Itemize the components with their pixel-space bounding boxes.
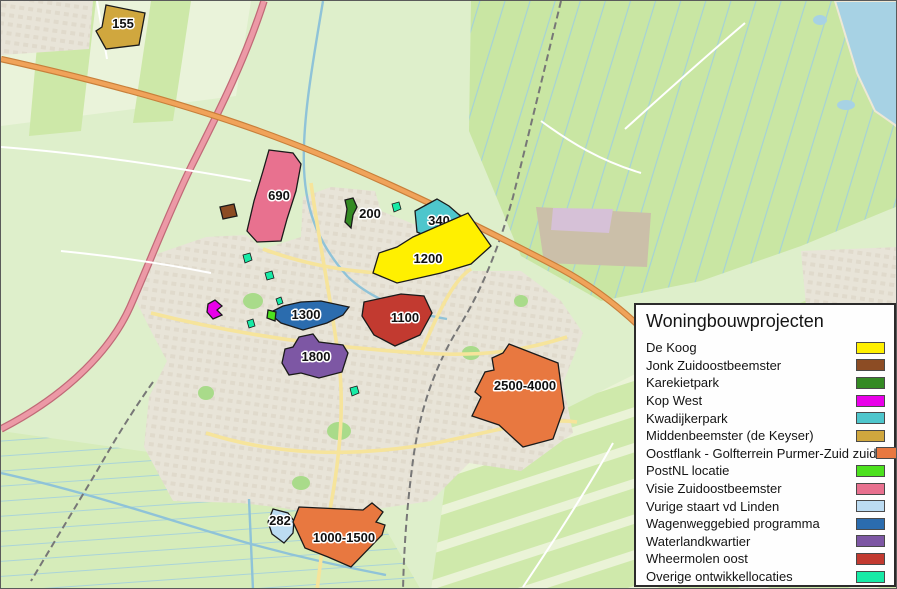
- legend-item: Kop West: [646, 392, 885, 410]
- legend-item: De Koog: [646, 339, 885, 357]
- legend-item-label: Waterlandkwartier: [646, 534, 750, 549]
- site-overige-ontwikkellocaties: [247, 319, 255, 328]
- legend-item: Vurige staart vd Linden: [646, 497, 885, 515]
- legend-item: Jonk Zuidoostbeemster: [646, 357, 885, 375]
- project-units-label: 1000-1500: [313, 530, 375, 545]
- legend-swatch: [856, 342, 885, 354]
- legend-item: PostNL locatie: [646, 462, 885, 480]
- legend-item-label: PostNL locatie: [646, 463, 729, 478]
- legend-item: Visie Zuidoostbeemster: [646, 480, 885, 498]
- legend-item: Middenbeemster (de Keyser): [646, 427, 885, 445]
- legend-swatch: [856, 483, 885, 495]
- legend-item-label: Wagenweggebied programma: [646, 516, 820, 531]
- legend-swatch: [856, 430, 885, 442]
- legend-item-label: Wheermolen oost: [646, 551, 748, 566]
- project-units-label: 1300: [292, 307, 321, 322]
- legend-swatch: [856, 500, 885, 512]
- legend-item-label: Visie Zuidoostbeemster: [646, 481, 782, 496]
- legend-item-label: Middenbeemster (de Keyser): [646, 428, 814, 443]
- legend-title: Woningbouwprojecten: [646, 311, 885, 332]
- legend-swatch: [876, 447, 897, 459]
- project-units-label: 690: [268, 188, 290, 203]
- legend-swatch: [856, 377, 885, 389]
- project-area-jonk-zuidoostbeemster: [220, 204, 237, 219]
- project-units-label: 155: [112, 16, 134, 31]
- project-units-label: 1800: [302, 349, 331, 364]
- legend-item-label: Vurige staart vd Linden: [646, 499, 779, 514]
- legend-item-label: Overige ontwikkellocaties: [646, 569, 793, 584]
- legend-item: Wheermolen oost: [646, 550, 885, 568]
- legend-item-label: Oostflank - Golfterrein Purmer-Zuid zuid: [646, 446, 876, 461]
- legend-item: Kwadijkerpark: [646, 409, 885, 427]
- project-units-label: 1100: [391, 310, 419, 325]
- legend-swatch: [856, 553, 885, 565]
- project-units-label: 1200: [414, 251, 443, 266]
- legend-item-label: Kop West: [646, 393, 702, 408]
- legend-swatch: [856, 359, 885, 371]
- legend-item-label: De Koog: [646, 340, 697, 355]
- legend-item: Wagenweggebied programma: [646, 515, 885, 533]
- legend-item: Waterlandkwartier: [646, 533, 885, 551]
- legend-item: Karekietpark: [646, 374, 885, 392]
- legend-swatch: [856, 465, 885, 477]
- legend-swatch: [856, 395, 885, 407]
- legend-swatch: [856, 518, 885, 530]
- project-units-label: 282: [269, 513, 291, 528]
- legend-item: Oostflank - Golfterrein Purmer-Zuid zuid: [646, 445, 885, 463]
- site-overige-ontwikkellocaties: [265, 271, 274, 280]
- project-units-label: 2500-4000: [494, 378, 556, 393]
- map-figure: 15569020034012001100130018002500-4000282…: [0, 0, 897, 589]
- legend-item-label: Karekietpark: [646, 375, 719, 390]
- map-urban-industrial: [536, 207, 651, 267]
- legend-swatch: [856, 535, 885, 547]
- map-urban-village-northwest: [1, 1, 93, 55]
- legend-items: De KoogJonk ZuidoostbeemsterKarekietpark…: [646, 339, 885, 585]
- project-units-label: 200: [359, 206, 381, 221]
- legend-swatch: [856, 412, 885, 424]
- legend-item: Overige ontwikkellocaties: [646, 568, 885, 586]
- legend-item-label: Jonk Zuidoostbeemster: [646, 358, 781, 373]
- legend-item-label: Kwadijkerpark: [646, 411, 728, 426]
- legend-swatch: [856, 571, 885, 583]
- legend-box: Woningbouwprojecten De KoogJonk Zuidoost…: [634, 303, 896, 587]
